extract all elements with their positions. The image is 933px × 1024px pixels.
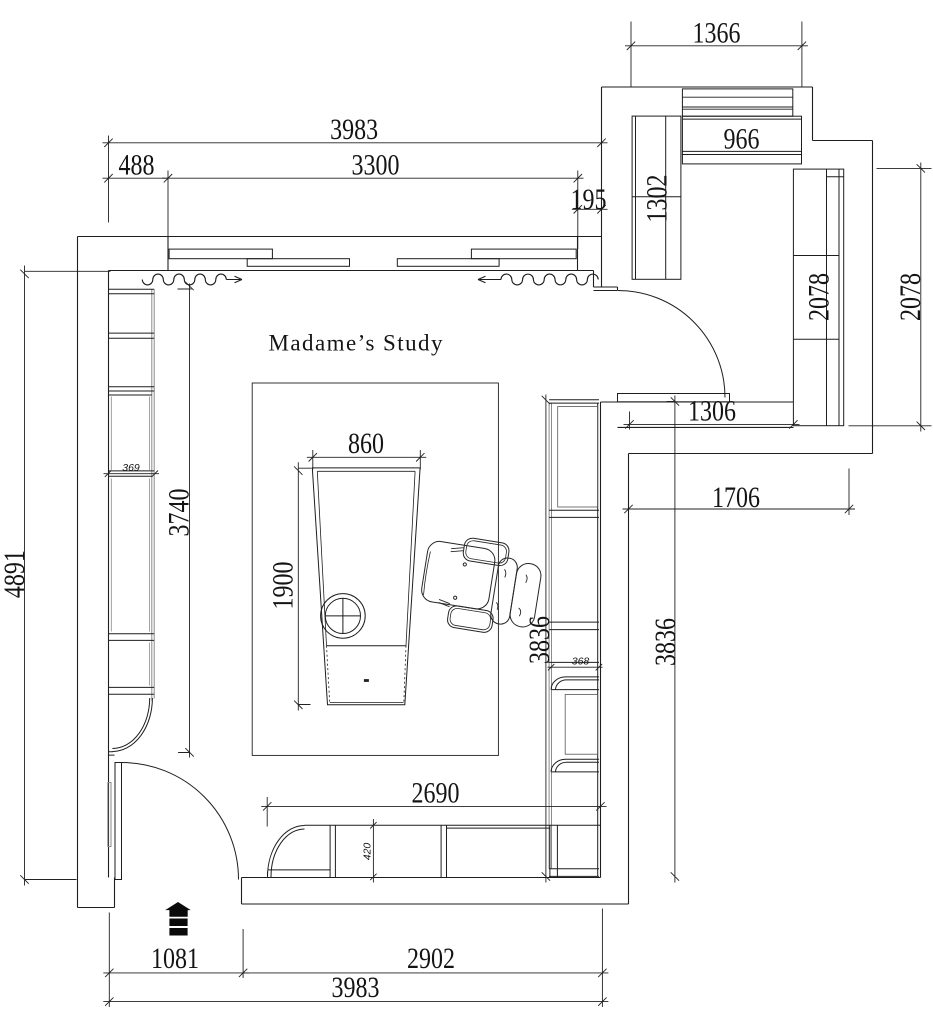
svg-text:3983: 3983 xyxy=(330,113,378,146)
svg-text:2690: 2690 xyxy=(412,777,460,810)
svg-text:488: 488 xyxy=(119,149,155,182)
svg-text:420: 420 xyxy=(362,843,374,861)
svg-text:3740: 3740 xyxy=(163,489,196,537)
svg-text:3983: 3983 xyxy=(332,971,380,1004)
svg-text:2078: 2078 xyxy=(803,273,836,321)
svg-text:368: 368 xyxy=(572,656,590,668)
svg-text:1706: 1706 xyxy=(712,481,760,514)
svg-text:3836: 3836 xyxy=(649,618,682,666)
svg-text:966: 966 xyxy=(724,123,760,156)
svg-text:1306: 1306 xyxy=(688,395,736,428)
svg-text:195: 195 xyxy=(571,183,607,216)
svg-text:3836: 3836 xyxy=(523,616,556,664)
svg-text:2078: 2078 xyxy=(894,273,927,321)
svg-text:2902: 2902 xyxy=(407,942,455,975)
svg-text:369: 369 xyxy=(122,462,140,474)
svg-text:4891: 4891 xyxy=(0,550,31,598)
svg-text:3300: 3300 xyxy=(352,149,400,182)
svg-text:Madame’s Study: Madame’s Study xyxy=(269,331,444,356)
svg-text:1900: 1900 xyxy=(267,562,300,610)
svg-text:860: 860 xyxy=(348,427,384,460)
svg-text:1366: 1366 xyxy=(693,17,741,50)
svg-text:1302: 1302 xyxy=(641,175,674,223)
svg-text:1081: 1081 xyxy=(151,942,199,975)
